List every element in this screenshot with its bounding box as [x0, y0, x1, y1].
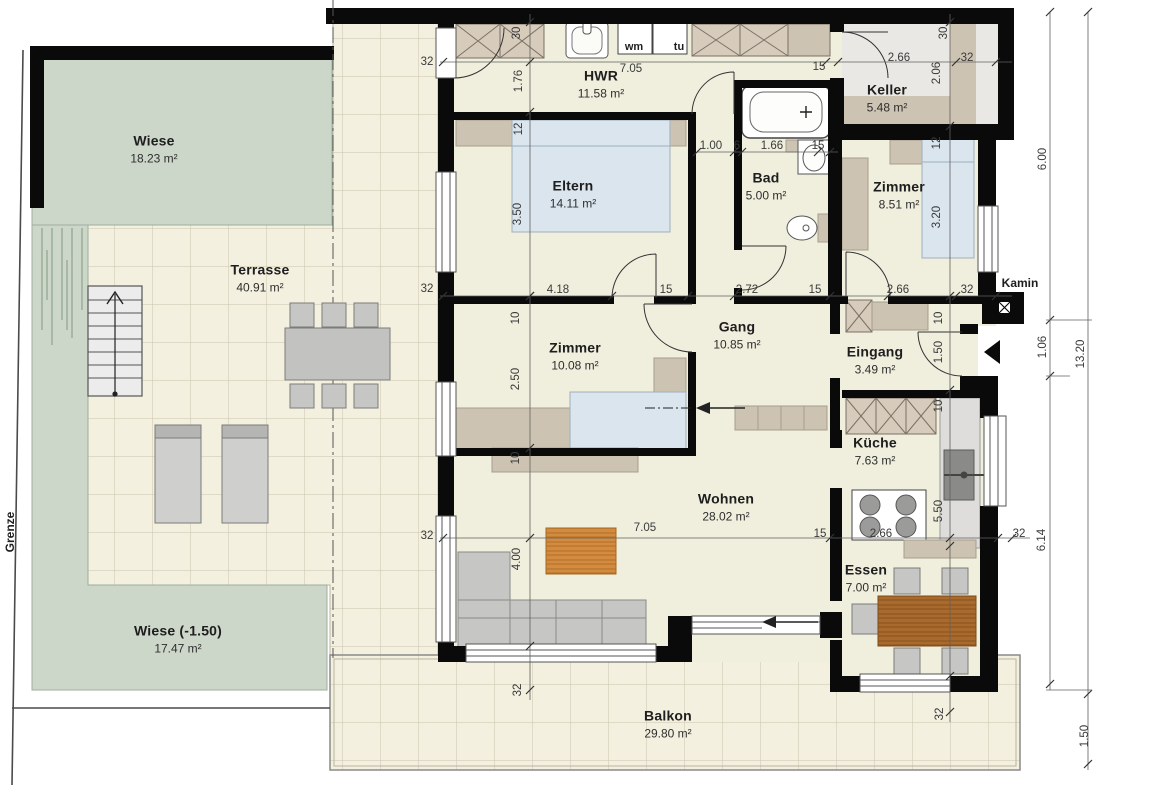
- dimension-label: 10: [510, 312, 522, 325]
- terrace-dining-set: [285, 303, 390, 408]
- floor-plan: Wiese 18.23 m² Terrasse 40.91 m² Wiese (…: [0, 0, 1170, 785]
- dimension-label: 10: [933, 312, 945, 325]
- label-grenze: Grenze: [3, 512, 17, 553]
- dimension-label: 2.50: [510, 368, 522, 390]
- eingang-furniture: [846, 300, 928, 332]
- dimension-label: 15: [812, 140, 825, 152]
- floor-plan-graphics: [0, 0, 1170, 785]
- dimension-label: 15: [809, 284, 822, 296]
- dimension-label: 12: [513, 123, 525, 136]
- dimension-label: 1.00: [700, 140, 722, 152]
- kamin-glyph: [999, 302, 1010, 313]
- dimension-label: 10: [933, 400, 945, 413]
- label-dryer: tu: [674, 41, 684, 53]
- interior-floor: [438, 8, 1014, 692]
- dimension-label: 15: [814, 528, 827, 540]
- dimension-label: 3.20: [931, 206, 943, 228]
- dimension-label: 32: [961, 52, 974, 64]
- dimension-label: 6.14: [1036, 529, 1048, 551]
- dimension-label: 2.66: [870, 528, 892, 540]
- dimension-label: 2.66: [888, 52, 910, 64]
- dimension-label: 32: [512, 684, 524, 697]
- dimension-label: 10: [510, 452, 522, 465]
- dimension-label: 32: [421, 56, 434, 68]
- dimension-label: 2.66: [887, 284, 909, 296]
- dimension-label: 1.50: [933, 341, 945, 363]
- dimension-label: 13.20: [1075, 340, 1087, 369]
- dimension-label: 1.06: [1037, 336, 1049, 358]
- dimension-label: 32: [961, 284, 974, 296]
- dimension-label: 1.66: [761, 140, 783, 152]
- label-kamin: Kamin: [1002, 276, 1039, 290]
- label-washing-machine: wm: [625, 41, 643, 53]
- dimension-label: 5.50: [933, 500, 945, 522]
- dimension-label: 2.06: [931, 62, 943, 84]
- dimension-label: 4.00: [511, 548, 523, 570]
- dimension-label: 15: [813, 61, 826, 73]
- dimension-label: 3.50: [512, 203, 524, 225]
- terrace-stairs: [88, 286, 142, 397]
- dimension-label: 32: [1013, 528, 1026, 540]
- dimension-label: 6.00: [1037, 148, 1049, 170]
- dimension-label: 4.18: [547, 284, 569, 296]
- dimension-label: 15: [660, 284, 673, 296]
- dimension-label: 30: [938, 27, 950, 40]
- dimension-label: 7.05: [634, 522, 656, 534]
- dimension-label: 7.05: [620, 63, 642, 75]
- dimension-label: 32: [934, 708, 946, 721]
- dimension-label: 1.50: [1079, 725, 1091, 747]
- dimension-label: 32: [421, 283, 434, 295]
- dimension-label: 30: [511, 27, 523, 40]
- dimension-label: 1.76: [513, 70, 525, 92]
- dimension-label: 6: [734, 140, 740, 152]
- dimension-label: 2.72: [736, 284, 758, 296]
- dimension-label: 12: [931, 137, 943, 150]
- dimension-label: 32: [421, 530, 434, 542]
